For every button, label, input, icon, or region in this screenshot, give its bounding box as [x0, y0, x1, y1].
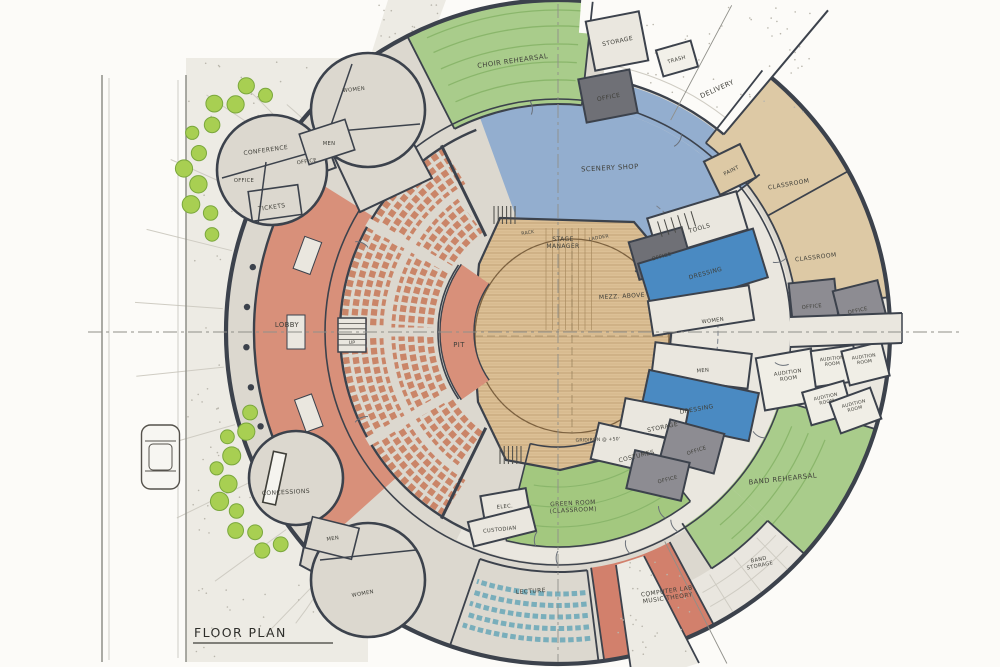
plaza-speckle: [709, 43, 711, 45]
plaza-speckle: [740, 94, 742, 96]
plaza-speckle: [642, 641, 644, 643]
shrub: [175, 160, 192, 177]
plaza-speckle: [276, 61, 278, 63]
plaza-speckle: [763, 100, 765, 102]
lobby-column: [243, 344, 249, 350]
plaza-speckle: [635, 619, 637, 621]
plaza-speckle: [689, 611, 691, 613]
plaza-speckle: [220, 259, 222, 261]
plaza-speckle: [216, 255, 218, 257]
plaza-speckle: [808, 58, 810, 60]
plaza-speckle: [202, 459, 204, 461]
plaza-speckle: [767, 27, 769, 29]
plaza-speckle: [716, 106, 718, 108]
plaza-speckle: [809, 13, 811, 15]
shrub: [238, 423, 255, 440]
plaza-speckle: [632, 650, 634, 652]
plaza-speckle: [207, 388, 209, 390]
shrub: [186, 126, 199, 139]
label-lobby: LOBBY: [275, 321, 300, 329]
plaza-speckle: [191, 399, 193, 401]
plaza-speckle: [298, 599, 300, 601]
plaza-speckle: [280, 81, 282, 83]
plaza-speckle: [204, 518, 206, 520]
shrub: [221, 430, 235, 444]
plaza-speckle: [679, 575, 681, 577]
plaza-speckle: [249, 497, 251, 499]
plaza-speckle: [380, 35, 382, 37]
plaza-speckle: [188, 101, 190, 103]
plaza-speckle: [378, 5, 380, 7]
plaza-speckle: [389, 36, 391, 38]
shrub: [227, 96, 244, 113]
plaza-speckle: [210, 446, 212, 448]
plaza-speckle: [639, 570, 641, 572]
plaza-speckle: [306, 67, 308, 69]
plaza-speckle: [687, 35, 689, 37]
plaza-speckle: [251, 93, 253, 95]
plaza-speckle: [192, 504, 194, 506]
plaza-speckle: [198, 590, 200, 592]
plaza-speckle: [217, 452, 219, 454]
plaza-speckle: [241, 77, 243, 79]
label-men-nw: MEN: [323, 141, 336, 147]
label-office-conf-2: OFFICE: [234, 178, 254, 184]
page-title: FLOOR PLAN: [194, 625, 287, 640]
plaza-speckle: [801, 66, 803, 68]
plaza-speckle: [437, 13, 439, 15]
plaza-speckle: [239, 496, 241, 498]
plaza-speckle: [264, 594, 266, 596]
plaza-speckle: [680, 629, 682, 631]
plaza-speckle: [656, 632, 658, 634]
plaza-speckle: [632, 588, 634, 590]
plaza-speckle: [196, 651, 198, 653]
plaza-speckle: [786, 28, 788, 30]
plaza-speckle: [749, 96, 751, 98]
plaza-speckle: [219, 66, 221, 68]
plaza-speckle: [794, 59, 796, 61]
shrub: [229, 504, 243, 518]
plaza-speckle: [263, 616, 265, 618]
plaza-speckle: [770, 17, 772, 19]
plaza-speckle: [650, 82, 652, 84]
plaza-speckle: [666, 574, 668, 576]
plaza-speckle: [652, 24, 654, 26]
shrub: [223, 447, 241, 465]
plaza-speckle: [641, 626, 643, 628]
plaza-speckle: [201, 401, 203, 403]
floor-plan-page: CHOIR REHEARSAL STORAGE TRASH DELIVERY O…: [0, 0, 1000, 667]
plaza-speckle: [243, 599, 245, 601]
plaza-speckle: [775, 7, 777, 9]
shrub: [210, 492, 228, 510]
plaza-speckle: [678, 607, 680, 609]
plaza-speckle: [227, 606, 229, 608]
plaza-speckle: [790, 72, 792, 74]
plaza-speckle: [629, 567, 631, 569]
plaza-speckle: [436, 4, 438, 6]
shrub: [204, 117, 220, 133]
plaza-speckle: [646, 25, 648, 27]
plaza-speckle: [683, 76, 685, 78]
plaza-speckle: [654, 562, 656, 564]
plaza-speckle: [794, 52, 796, 54]
shrub: [238, 78, 254, 94]
plaza-speckle: [205, 327, 207, 329]
shrub: [203, 206, 217, 220]
plaza-speckle: [187, 416, 189, 418]
plaza-speckle: [709, 33, 711, 35]
plan-geometry: [88, 0, 962, 667]
plaza-speckle: [194, 260, 196, 262]
plaza-speckle: [698, 59, 700, 61]
plaza-speckle: [218, 364, 220, 366]
plaza-speckle: [394, 33, 396, 35]
plaza-speckle: [218, 455, 220, 457]
plaza-speckle: [685, 39, 687, 41]
plaza-speckle: [713, 78, 715, 80]
shrub: [210, 462, 223, 475]
plaza-speckle: [794, 106, 796, 108]
plaza-speckle: [780, 33, 782, 35]
plaza-speckle: [207, 505, 209, 507]
shrub: [206, 95, 223, 112]
shrub: [273, 537, 288, 552]
plaza-speckle: [651, 574, 653, 576]
plaza-speckle: [799, 46, 801, 48]
lobby-column: [248, 384, 254, 390]
plaza-speckle: [654, 635, 656, 637]
plaza-speckle: [414, 26, 416, 28]
plaza-speckle: [383, 10, 385, 12]
east-corridor-stub: [790, 313, 902, 347]
concessions-pod: [249, 431, 343, 525]
plaza-speckle: [208, 532, 210, 534]
shrub: [243, 405, 258, 420]
plaza-speckle: [728, 7, 730, 9]
plaza-speckle: [645, 647, 647, 649]
plaza-speckle: [203, 194, 205, 196]
plaza-speckle: [202, 588, 204, 590]
plaza-speckle: [749, 17, 751, 19]
plaza-speckle: [225, 589, 227, 591]
plaza-speckle: [198, 490, 200, 492]
plaza-speckle: [769, 65, 771, 67]
plaza-speckle: [655, 74, 657, 76]
plaza-speckle: [391, 10, 393, 12]
label-men-se: MEN: [696, 367, 709, 374]
shrub: [205, 228, 219, 242]
plaza-speckle: [776, 21, 778, 23]
shrub: [248, 525, 263, 540]
plaza-speckle: [197, 394, 199, 396]
plaza-speckle: [750, 19, 752, 21]
plaza-speckle: [313, 611, 315, 613]
plaza-speckle: [199, 529, 201, 531]
plaza-speckle: [672, 92, 674, 94]
parked-car: [142, 425, 180, 489]
plaza-speckle: [647, 73, 649, 75]
plaza-speckle: [632, 624, 634, 626]
plaza-speckle: [789, 49, 791, 51]
plaza-speckle: [206, 592, 208, 594]
shrub: [220, 475, 238, 493]
shrub: [255, 543, 270, 558]
shrub: [191, 146, 206, 161]
plaza-speckle: [794, 11, 796, 13]
shrub: [228, 523, 244, 539]
plaza-speckle: [685, 650, 687, 652]
lobby-column: [257, 423, 263, 429]
floor-plan-drawing: CHOIR REHEARSAL STORAGE TRASH DELIVERY O…: [0, 0, 1000, 667]
label-green-room: GREEN ROOM(CLASSROOM): [549, 499, 597, 515]
shrub: [259, 88, 273, 102]
plaza-speckle: [383, 19, 385, 21]
plaza-speckle: [797, 67, 799, 69]
lobby-column: [244, 304, 250, 310]
plaza-speckle: [253, 102, 255, 104]
plaza-speckle: [617, 632, 619, 634]
plaza-speckle: [771, 35, 773, 37]
plaza-speckle: [219, 421, 221, 423]
plaza-speckle: [629, 562, 631, 564]
plaza-speckle: [229, 609, 231, 611]
plaza-speckle: [217, 408, 219, 410]
plaza-speckle: [643, 653, 645, 655]
plaza-speckle: [637, 588, 639, 590]
plaza-speckle: [802, 111, 804, 113]
plaza-speckle: [205, 63, 207, 65]
lobby-column: [250, 264, 256, 270]
plaza-speckle: [431, 4, 433, 6]
plaza-speckle: [412, 26, 414, 28]
plaza-speckle: [749, 94, 751, 96]
plaza-speckle: [298, 585, 300, 587]
plaza-speckle: [630, 615, 632, 617]
label-pit: PIT: [453, 341, 465, 349]
plaza-speckle: [214, 656, 216, 658]
plaza-speckle: [620, 618, 622, 620]
plaza-speckle: [622, 619, 624, 621]
label-up: UP: [349, 340, 356, 346]
shrub: [182, 196, 200, 214]
plaza-speckle: [231, 211, 233, 213]
shrub: [190, 176, 207, 193]
plaza-speckle: [203, 647, 205, 649]
